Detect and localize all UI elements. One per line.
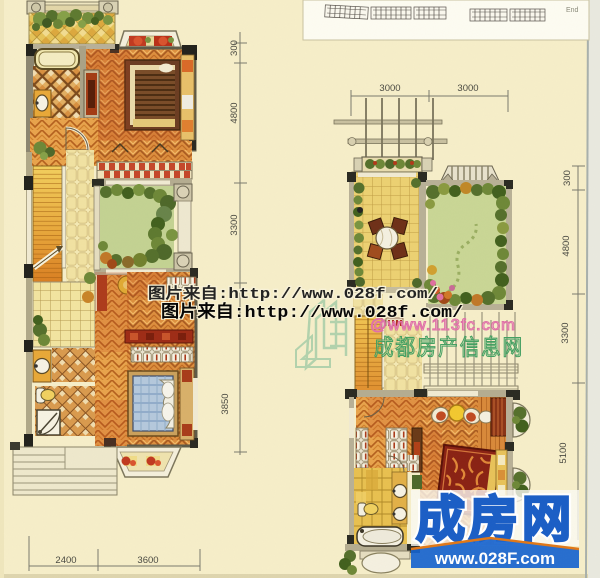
- svg-text:图片来自:http://www.028f.com/: 图片来自:http://www.028f.com/: [161, 301, 463, 323]
- svg-text:5100: 5100: [558, 442, 569, 463]
- svg-text:3300: 3300: [560, 322, 571, 343]
- svg-text:4800: 4800: [561, 235, 572, 256]
- svg-text:图片来自:http://www.028f.com/: 图片来自:http://www.028f.com/: [148, 284, 438, 303]
- svg-text:3300: 3300: [229, 214, 240, 235]
- svg-text:300: 300: [562, 170, 573, 186]
- svg-text:3600: 3600: [137, 555, 158, 566]
- svg-text:4800: 4800: [229, 102, 240, 123]
- svg-text:3000: 3000: [457, 83, 478, 94]
- svg-text:300: 300: [229, 40, 240, 56]
- svg-text:3850: 3850: [220, 393, 231, 414]
- svg-text:End: End: [566, 7, 579, 14]
- svg-text:成都房产信息网: 成都房产信息网: [374, 335, 524, 360]
- svg-text:2400: 2400: [55, 555, 76, 566]
- svg-text:www.028F.com: www.028F.com: [434, 549, 555, 568]
- svg-text:3000: 3000: [379, 83, 400, 94]
